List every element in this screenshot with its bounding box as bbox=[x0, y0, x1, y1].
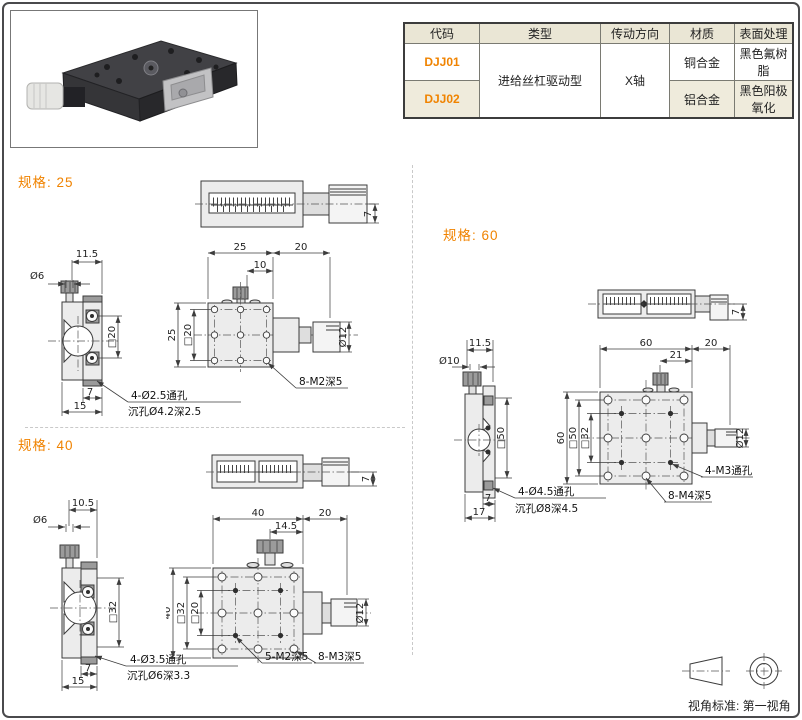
dim-hole-square: □32 bbox=[108, 601, 119, 623]
dim-side-width: 11.5 bbox=[76, 249, 98, 260]
table-row: DJJ01 进给丝杠驱动型 X轴 铜合金 黑色氟树脂 bbox=[404, 44, 793, 81]
cell-direction: X轴 bbox=[601, 44, 670, 119]
view-standard-label: 视角标准: 第一视角 bbox=[688, 697, 791, 714]
dim-knob-offset: 10 bbox=[254, 260, 267, 271]
dim-offset: 7 bbox=[87, 387, 93, 398]
spec25-top-view-drawing: 7 bbox=[193, 176, 383, 234]
dim-offset: 7 bbox=[485, 493, 491, 504]
dim-outer-square: □50 bbox=[568, 427, 579, 449]
dim-plate-height: 25 bbox=[167, 329, 178, 342]
dim-knob-height: 7 bbox=[731, 309, 742, 315]
section-label-60: 规格: 60 bbox=[443, 224, 499, 244]
section-label-25: 规格: 25 bbox=[18, 171, 74, 191]
header-type: 类型 bbox=[480, 23, 601, 44]
note-outer-tapped: 8-M4深5 bbox=[668, 490, 711, 502]
note-inner-through: 4-M3通孔 bbox=[705, 464, 753, 477]
dim-mic-diameter: Ø12 bbox=[337, 327, 349, 348]
header-direction: 传动方向 bbox=[601, 23, 670, 44]
dim-knob-offset: 21 bbox=[670, 350, 683, 361]
cell-surface: 黑色氟树脂 bbox=[735, 44, 794, 81]
dim-base: 15 bbox=[74, 401, 87, 412]
catalog-page: 代码 类型 传动方向 材质 表面处理 DJJ01 进给丝杠驱动型 X轴 铜合金 … bbox=[0, 0, 802, 720]
section-label-40: 规格: 40 bbox=[18, 434, 74, 454]
dim-knob-diameter: Ø6 bbox=[30, 270, 44, 282]
dim-hole-square: □50 bbox=[496, 427, 507, 449]
header-material: 材质 bbox=[670, 23, 735, 44]
dim-inner-square: □20 bbox=[190, 602, 201, 624]
dim-side-width: 11.5 bbox=[469, 338, 491, 349]
section-divider bbox=[25, 427, 405, 428]
dim-plate-height: 40 bbox=[166, 607, 173, 620]
cell-type: 进给丝杠驱动型 bbox=[480, 44, 601, 119]
dim-plate-height: 60 bbox=[556, 432, 567, 445]
dim-mic-length: 20 bbox=[295, 242, 308, 253]
table-header-row: 代码 类型 传动方向 材质 表面处理 bbox=[404, 23, 793, 44]
header-surface: 表面处理 bbox=[735, 23, 794, 44]
column-divider bbox=[412, 165, 413, 655]
spec60-front-view-drawing: 60 20 21 Ø12 6 bbox=[546, 328, 801, 558]
spec-table: 代码 类型 传动方向 材质 表面处理 DJJ01 进给丝杠驱动型 X轴 铜合金 … bbox=[403, 22, 794, 119]
dim-knob-diameter: Ø10 bbox=[439, 355, 460, 367]
note-inner-tapped: 5-M2深5 bbox=[265, 651, 308, 663]
note-tapped-holes: 8-M2深5 bbox=[299, 376, 342, 388]
dim-base: 15 bbox=[72, 676, 85, 687]
dim-knob-height: 7 bbox=[361, 476, 372, 482]
dim-knob-diameter: Ø6 bbox=[33, 514, 47, 526]
cell-material: 铝合金 bbox=[670, 81, 735, 119]
dim-hole-square: □20 bbox=[183, 324, 194, 346]
dim-offset: 7 bbox=[85, 663, 91, 674]
dim-mic-diameter: Ø12 bbox=[354, 603, 366, 624]
spec40-top-view-drawing: 7 bbox=[203, 442, 398, 504]
dim-side-width: 10.5 bbox=[72, 498, 94, 509]
spec40-front-view-drawing: 40 20 14.5 Ø12 bbox=[166, 503, 406, 708]
dim-outer-square: □32 bbox=[176, 602, 187, 624]
first-angle-projection-symbol bbox=[676, 652, 796, 694]
header-code: 代码 bbox=[404, 23, 480, 44]
dim-knob-offset: 14.5 bbox=[275, 521, 297, 532]
spec25-front-view-drawing: 25 20 10 Ø12 25 □20 bbox=[166, 232, 401, 427]
dim-plate-width: 25 bbox=[234, 242, 247, 253]
dim-inner-square: □32 bbox=[580, 427, 591, 449]
dim-plate-width: 60 bbox=[640, 338, 653, 349]
dim-mic-diameter: Ø12 bbox=[734, 428, 746, 449]
dim-mic-length: 20 bbox=[705, 338, 718, 349]
dim-plate-width: 40 bbox=[252, 508, 265, 519]
cell-code: DJJ02 bbox=[404, 81, 480, 119]
note-outer-tapped: 8-M3深5 bbox=[318, 651, 361, 663]
dim-mic-length: 20 bbox=[319, 508, 332, 519]
cell-code: DJJ01 bbox=[404, 44, 480, 81]
dim-base: 17 bbox=[473, 507, 486, 518]
product-photo bbox=[10, 10, 258, 148]
dim-hole-square: □20 bbox=[107, 326, 118, 348]
cell-material: 铜合金 bbox=[670, 44, 735, 81]
product-photo-image bbox=[11, 11, 257, 147]
dim-knob-height: 7 bbox=[363, 211, 374, 217]
cell-surface: 黑色阳极氧化 bbox=[735, 81, 794, 119]
